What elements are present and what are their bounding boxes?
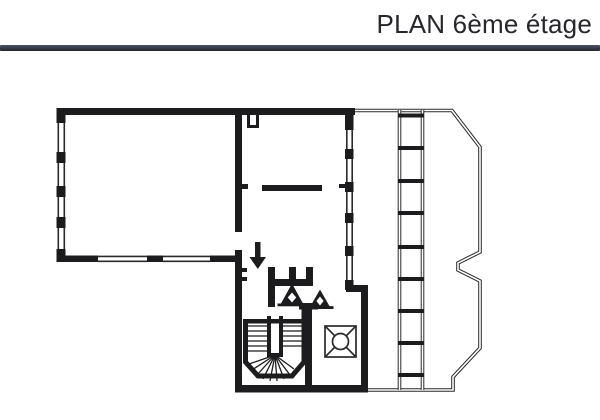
staircase (243, 308, 305, 381)
terrace-outline (355, 111, 480, 391)
balcony-ladder (398, 110, 424, 390)
vent-shaft-triangle-icon (278, 284, 306, 307)
down-arrow-icon (250, 242, 267, 269)
exterior-walls (57, 108, 369, 393)
vent-shaft-triangle-icon-2 (308, 290, 334, 310)
interior-partitions (249, 115, 323, 307)
window-wall-right (339, 113, 354, 290)
floor-plan (0, 0, 600, 420)
window-wall-left (57, 108, 66, 262)
elevator-icon (325, 326, 356, 357)
